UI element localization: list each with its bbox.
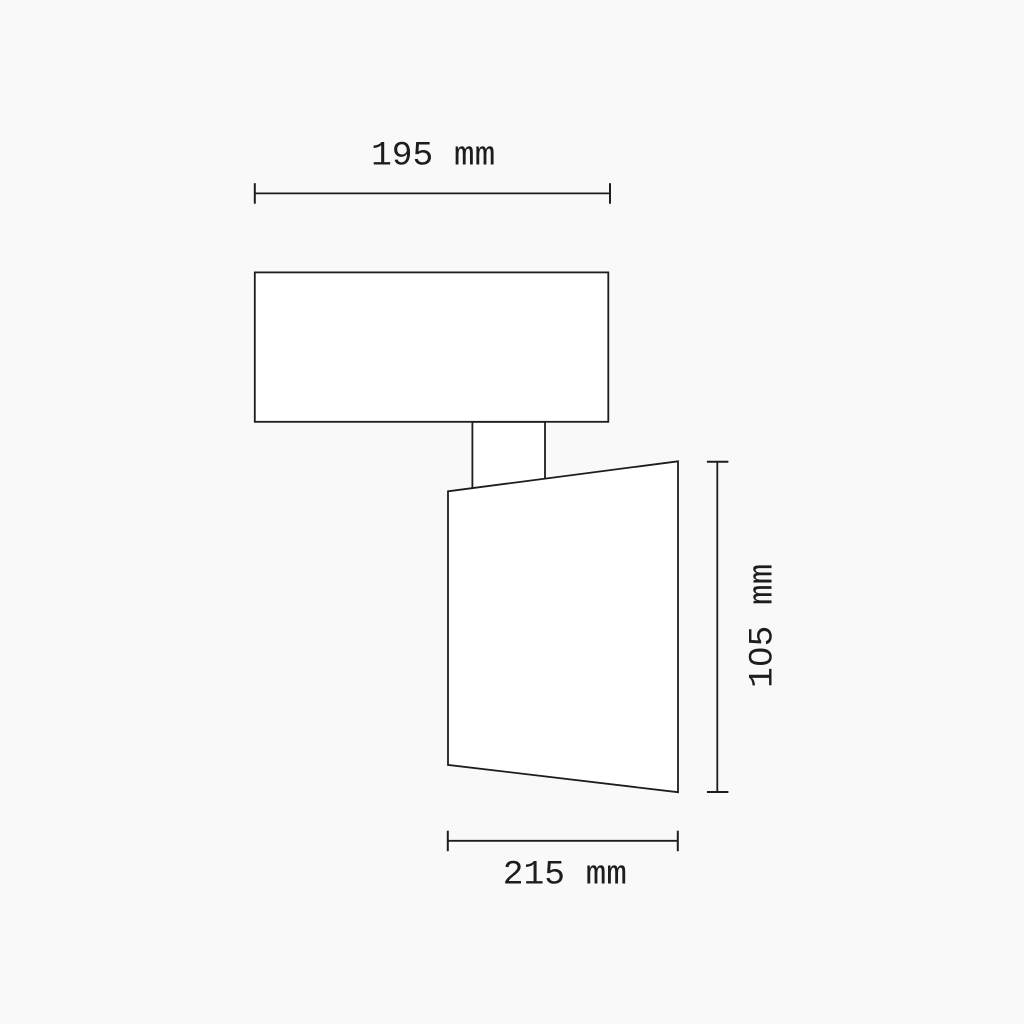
svg-text:195 mm: 195 mm: [371, 136, 495, 175]
svg-text:105 mm: 105 mm: [743, 564, 782, 688]
svg-text:215 mm: 215 mm: [503, 856, 627, 895]
